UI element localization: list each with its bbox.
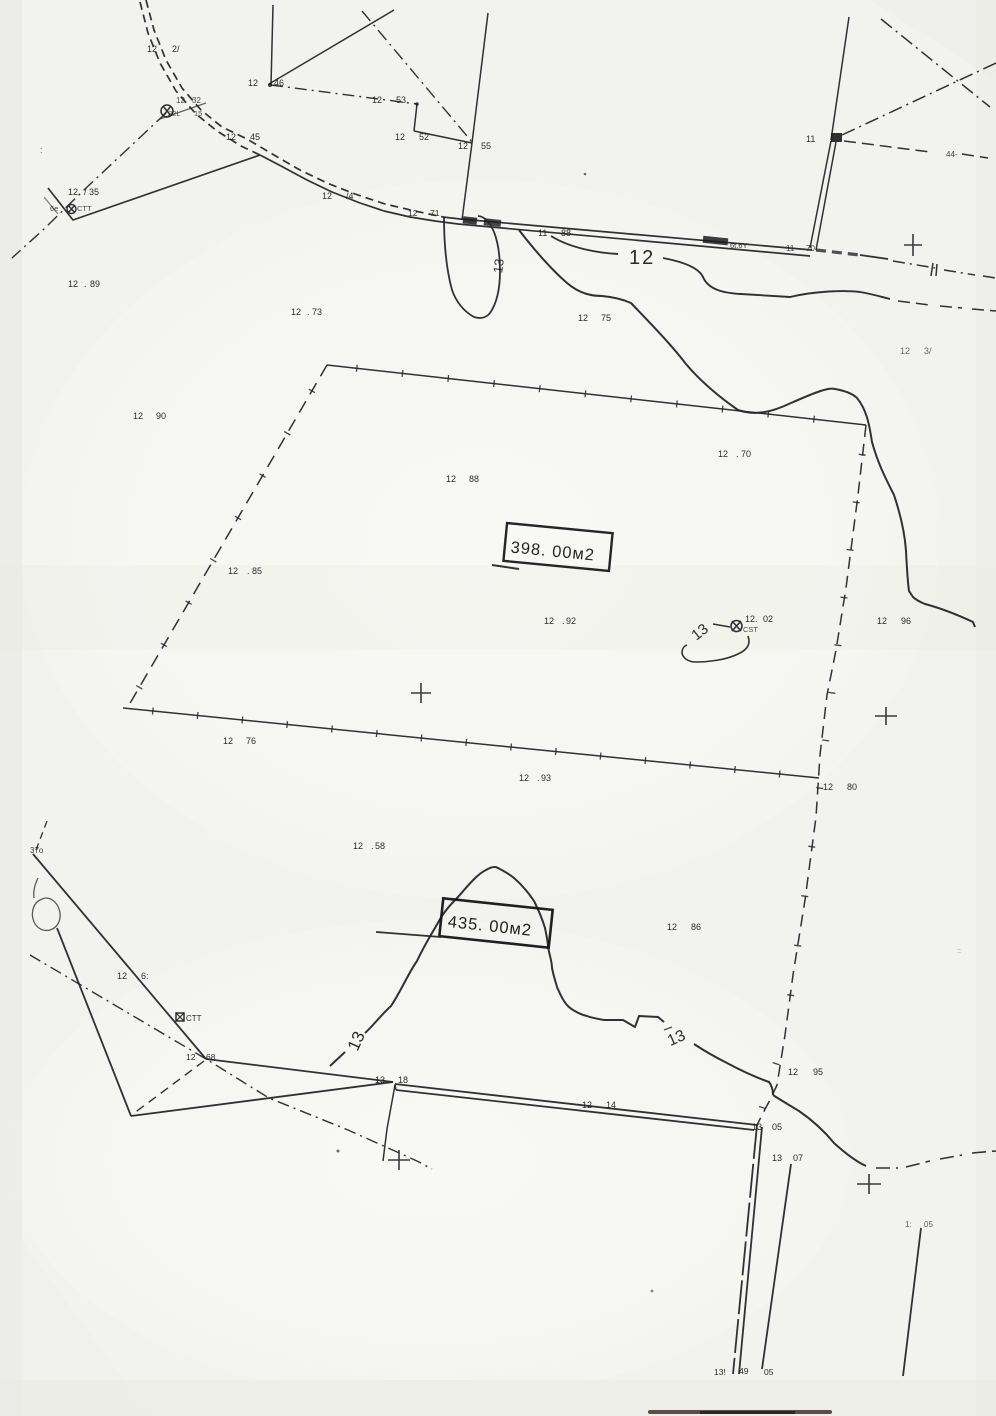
- svg-text:12: 12: [629, 247, 655, 269]
- svg-text:05: 05: [764, 1367, 774, 1377]
- svg-text:6t.6Y: 6t.6Y: [730, 241, 748, 250]
- svg-text:11: 11: [806, 134, 815, 144]
- svg-text:12.89: 12.89: [68, 279, 100, 289]
- svg-text:44-: 44-: [946, 150, 958, 159]
- svg-text:13!: 13!: [714, 1367, 726, 1377]
- svg-text:12.73: 12.73: [291, 307, 322, 317]
- svg-text:13: 13: [490, 258, 507, 274]
- svg-text:49: 49: [739, 1366, 749, 1376]
- svg-text:12/35: 12/35: [68, 187, 99, 197]
- svg-text::: :: [40, 145, 43, 155]
- svg-text:CST: CST: [743, 625, 758, 634]
- svg-text:CTT: CTT: [186, 1014, 202, 1023]
- svg-text:37o: 37o: [30, 846, 44, 855]
- svg-text:::: ::: [957, 948, 961, 955]
